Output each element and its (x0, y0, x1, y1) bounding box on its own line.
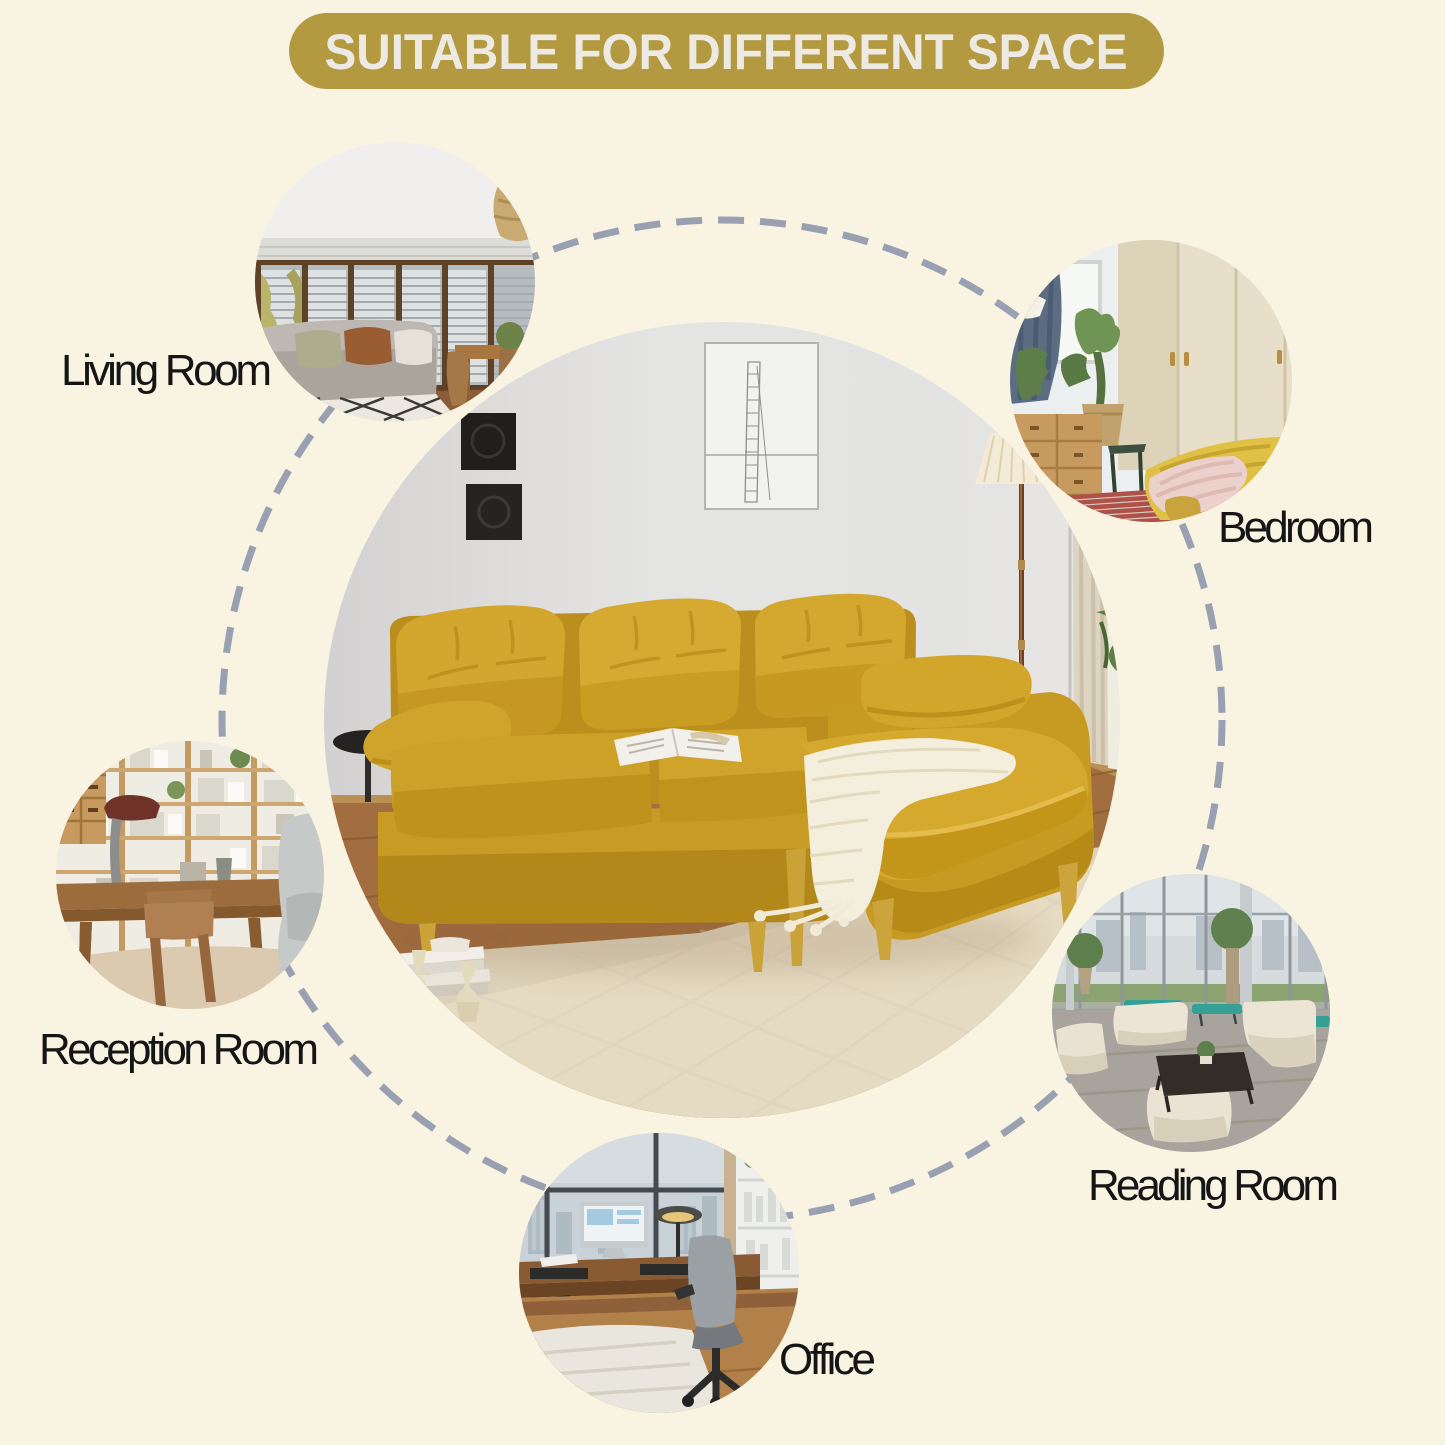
svg-text:Office: Office (779, 1335, 876, 1384)
svg-text:Living Room: Living Room (61, 346, 272, 395)
svg-text:Reception Room: Reception Room (39, 1025, 319, 1074)
svg-text:Reading Room: Reading Room (1088, 1161, 1339, 1210)
svg-text:Bedroom: Bedroom (1218, 503, 1374, 552)
svg-text:SUITABLE FOR DIFFERENT SPACE: SUITABLE FOR DIFFERENT SPACE (325, 24, 1128, 80)
